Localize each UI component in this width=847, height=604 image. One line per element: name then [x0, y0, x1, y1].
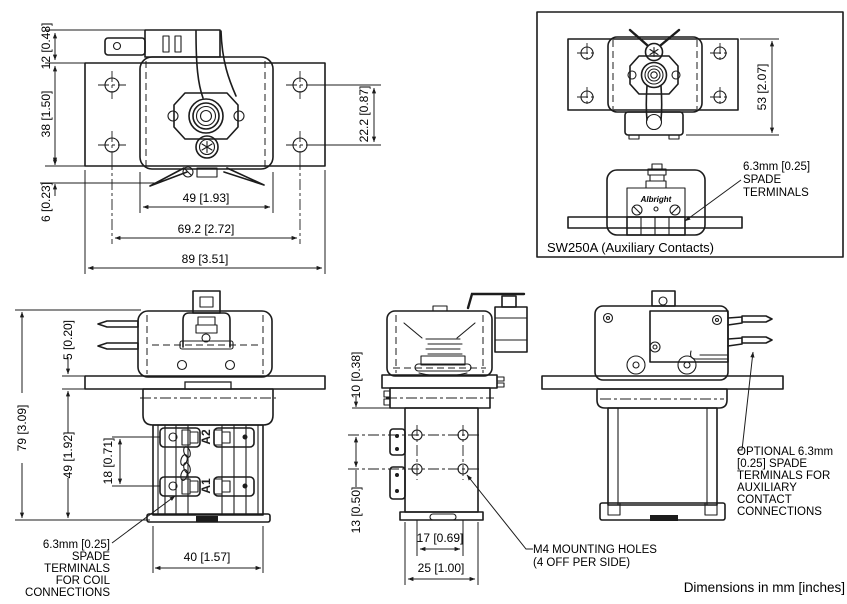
- coil-note-line: SPADE: [72, 551, 110, 563]
- hidden-edge-lines: [613, 40, 697, 109]
- m4-note-line: (4 OFF PER SIDE): [533, 557, 630, 569]
- lug-left: [160, 428, 200, 447]
- coil-note-line: FOR COIL: [56, 575, 111, 587]
- aux-note-line: CONTACT: [737, 494, 792, 506]
- top-tab: [652, 291, 675, 306]
- dim-label-53: 53 [2.07]: [755, 64, 769, 111]
- corner-screw: [713, 316, 722, 325]
- corner-screw: [604, 314, 613, 323]
- rivet: [395, 489, 399, 493]
- mounting-flange: [542, 376, 783, 389]
- coil-note-line: 6.3mm [0.25]: [43, 539, 110, 551]
- brand-logo: Albright: [640, 195, 672, 204]
- aux-terminal-blade-lower: [728, 337, 772, 346]
- terminal-dividers: [641, 217, 669, 235]
- corner-screw-center: [607, 317, 610, 320]
- box-caption: SW250A (Auxiliary Contacts): [547, 240, 714, 255]
- dim-label-79: 79 [3.09]: [15, 405, 29, 452]
- stud-inner: [201, 111, 212, 122]
- flange-tabs: [497, 377, 504, 387]
- hidden-edge-lines: [146, 61, 265, 167]
- boss-octagon: [174, 93, 238, 139]
- base-tab: [196, 516, 218, 522]
- stud-lug-ring: [189, 99, 223, 133]
- extension-lines: [40, 30, 381, 183]
- lug-clamp: [214, 479, 230, 494]
- vent-slots: [163, 36, 181, 52]
- strap-end: [647, 115, 662, 130]
- collar: [597, 389, 727, 408]
- pivot-pin: [633, 362, 639, 368]
- side-lug-left: [168, 111, 178, 121]
- magnet-frame: [405, 408, 478, 512]
- side-view: 10 [0.38] 13 [0.50] 17 [0.69] 25 [1.00] …: [348, 294, 657, 585]
- stud-mid: [197, 107, 216, 126]
- dim-label-25: 25 [1.00]: [418, 561, 465, 575]
- dim-label-18: 18 [0.71]: [101, 438, 115, 485]
- aux-terminal-blades: [98, 321, 138, 349]
- units-note: Dimensions in mm [inches]: [684, 580, 845, 595]
- funnel-walls: [404, 323, 475, 338]
- dim-label-10: 10 [0.38]: [349, 352, 363, 399]
- lug-clamp: [182, 430, 198, 445]
- drawing-canvas: 12 [0.48] 38 [1.50] 6 [0.23] 22.2 [0.87]…: [0, 0, 847, 604]
- plunger-inner: [200, 297, 213, 307]
- hidden-edge-lines: [147, 315, 263, 374]
- aux-note-line: CONNECTIONS: [737, 506, 822, 518]
- aux-contacts-box: 53 [2.07] Albright 6.3mm [0.25] SPADE TE…: [537, 12, 843, 257]
- aux-note: OPTIONAL 6.3mm [0.25] SPADE TERMINALS FO…: [737, 352, 833, 518]
- corner-screw-center: [716, 319, 719, 322]
- side-view-dimensions: 10 [0.38] 13 [0.50] 17 [0.69] 25 [1.00]: [349, 352, 478, 585]
- dim-label-12: 12 [0.48]: [39, 23, 53, 70]
- dim-label-38: 38 [1.50]: [39, 91, 53, 138]
- side-terminal-lower: [390, 467, 405, 499]
- pin-hole: [654, 207, 658, 211]
- switch-housing: [138, 311, 272, 377]
- plunger-stack: [196, 317, 217, 333]
- aux-note-line: [0.25] SPADE: [737, 458, 807, 470]
- base-plate: [400, 512, 483, 520]
- housing-hole: [178, 361, 187, 370]
- coil-wire-chain: [180, 446, 192, 481]
- screw-slot: [672, 207, 678, 213]
- pivot-boss: [627, 356, 645, 374]
- switch-screw-center: [653, 345, 657, 349]
- lug-rivet: [243, 435, 248, 440]
- hole-centerlines: [348, 425, 480, 480]
- mounting-flange: [382, 375, 497, 388]
- top-spade-terminal: [105, 38, 145, 55]
- stud-inner: [651, 72, 657, 78]
- screw-slot: [634, 207, 640, 213]
- star-glyph: [202, 142, 212, 153]
- spade-note-line: SPADE: [743, 174, 781, 186]
- strap: [196, 31, 236, 98]
- connector-lines: [495, 318, 527, 340]
- spade-terminal-row: [627, 217, 685, 235]
- lug-clamp: [182, 479, 198, 494]
- spring-coils: [426, 339, 462, 354]
- connector-pin: [502, 296, 516, 307]
- bottom-block: [625, 112, 683, 135]
- flange-notch: [185, 382, 231, 389]
- coil-note-line: CONNECTIONS: [25, 587, 110, 599]
- m4-note-line: M4 MOUNTING HOLES: [533, 544, 657, 556]
- mounting-plate: [85, 63, 325, 166]
- coil-terminal-a2: A2: [160, 428, 254, 447]
- stud-mid: [648, 69, 660, 81]
- dim-label-69-2: 69.2 [2.72]: [178, 222, 235, 236]
- aux-note-line: AUXILIARY: [737, 482, 797, 494]
- spade-hole: [114, 43, 121, 50]
- coil-terminal-a1: A1: [160, 477, 254, 496]
- dim-label-89: 89 [3.51]: [182, 252, 229, 266]
- m4-note: M4 MOUNTING HOLES (4 OFF PER SIDE): [467, 475, 657, 569]
- coil-note-line: TERMINALS: [44, 563, 110, 575]
- dim-label-49: 49 [1.92]: [61, 432, 75, 479]
- pivot-pin: [684, 362, 690, 368]
- engineering-drawing-page: 12 [0.48] 38 [1.50] 6 [0.23] 22.2 [0.87]…: [0, 0, 847, 604]
- side-lug-right: [234, 111, 244, 121]
- front-view: A2 A1: [15, 291, 325, 599]
- vent-block: [145, 30, 220, 57]
- top-tab-hole: [659, 297, 667, 305]
- coil-body: [608, 408, 717, 505]
- dim-label-6: 6 [0.23]: [39, 182, 53, 222]
- rivet: [395, 447, 399, 451]
- housing-hole: [226, 361, 235, 370]
- spade-note-line: TERMINALS: [743, 187, 809, 199]
- top-terminal-stack: [646, 164, 666, 188]
- plunger-cap: [193, 291, 220, 313]
- contactor-body-outline: [608, 37, 702, 112]
- dim-label-49: 49 [1.93]: [183, 191, 230, 205]
- leader-line: [737, 352, 753, 450]
- coil-edge-lines: [618, 408, 707, 505]
- aux-front-view: Albright 6.3mm [0.25] SPADE TERMINALS: [568, 161, 810, 235]
- switch-screw: [650, 342, 660, 352]
- aux-top-view: 53 [2.07]: [568, 30, 779, 139]
- terminal-label-a1: A1: [199, 478, 213, 494]
- back-plate: [595, 306, 728, 380]
- mounting-plate: [568, 39, 738, 110]
- m4-mounting-holes: [348, 425, 480, 480]
- spade-note-line: 6.3mm [0.25]: [743, 161, 810, 173]
- aux-note-line: TERMINALS FOR: [737, 470, 830, 482]
- collar: [143, 389, 273, 425]
- leader-line: [685, 180, 741, 221]
- dim-label-40: 40 [1.57]: [184, 550, 231, 564]
- terminal-label-a2: A2: [199, 429, 213, 445]
- star-glyph: [650, 48, 658, 57]
- base-tab: [430, 514, 456, 520]
- dim-label-17: 17 [0.69]: [417, 531, 464, 545]
- connector-block: [495, 307, 527, 352]
- switch-lever: [691, 351, 727, 359]
- base-tab: [650, 515, 678, 521]
- dim-label-22-2: 22.2 [0.87]: [357, 86, 371, 143]
- top-view: 12 [0.48] 38 [1.50] 6 [0.23] 22.2 [0.87]…: [39, 23, 381, 274]
- aux-note-line: OPTIONAL 6.3mm: [737, 446, 833, 458]
- aux-side-view: OPTIONAL 6.3mm [0.25] SPADE TERMINALS FO…: [542, 291, 833, 521]
- aux-terminal-blade-upper: [728, 316, 772, 325]
- rivet: [395, 473, 399, 477]
- lug-clamp: [214, 430, 230, 445]
- side-terminal-upper: [390, 429, 405, 455]
- lug-left: [160, 477, 200, 496]
- dim-label-5: 5 [0.20]: [61, 320, 75, 360]
- lug-rivet: [243, 484, 248, 489]
- dim-label-13: 13 [0.50]: [349, 487, 363, 534]
